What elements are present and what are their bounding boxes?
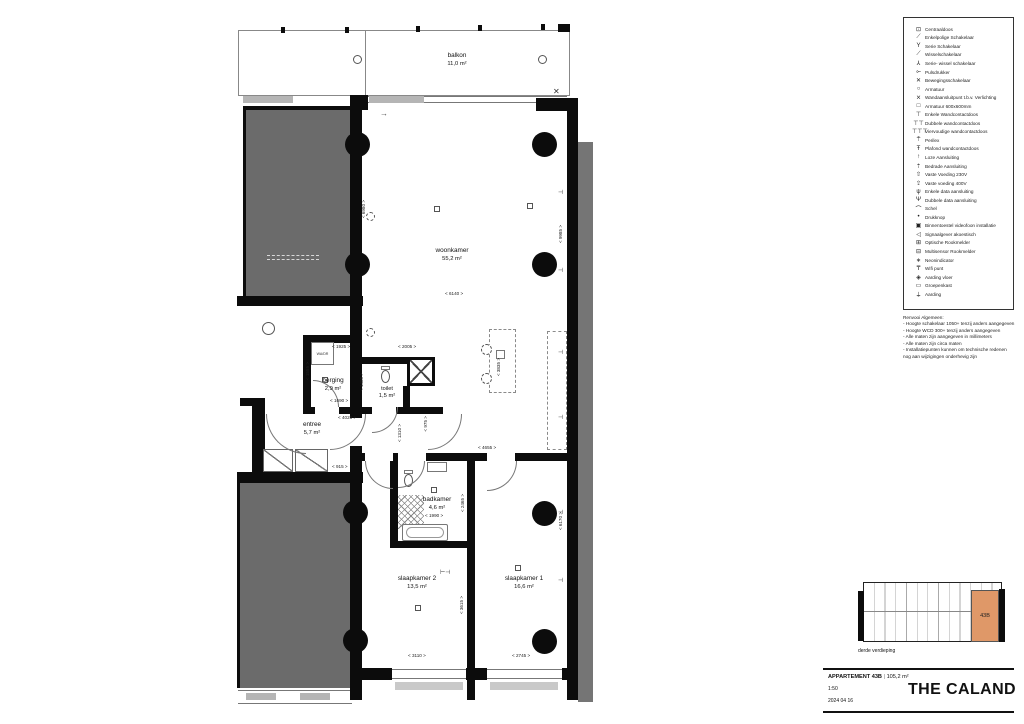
column xyxy=(532,252,557,277)
dimension: < 2745 > xyxy=(512,654,530,659)
luminaire-600x600-icon: □ xyxy=(912,103,925,109)
legend-item: ₸Wifi punt xyxy=(912,264,1009,273)
legend-label: Vaste voeding 400V xyxy=(925,181,967,186)
legend-label: Bewegingsschakelaar xyxy=(925,78,971,83)
key-plan-end-wall xyxy=(858,591,864,641)
project-title: THE CALAND xyxy=(908,681,1014,699)
legend-label: Wisselschakelaar xyxy=(925,52,961,57)
room-area: 16,6 m² xyxy=(514,584,534,590)
ceiling-light-icon xyxy=(434,206,440,212)
door-swing-woonkamer xyxy=(428,414,462,450)
wall xyxy=(393,453,398,461)
legend-label: Bedrade Aansluiting xyxy=(925,164,967,169)
legend-label: Serie- wissel schakelaar xyxy=(925,61,976,66)
optical-smoke-detector-icon: ⊞ xyxy=(912,239,925,246)
general-notes: Renvooi Algemeen: - Hoogte schakelaar 10… xyxy=(903,315,1018,360)
dimension: < 2465 > xyxy=(461,494,466,512)
dimension: < 6140 > xyxy=(445,292,463,297)
legend-item: ⅄Serie- wissel schakelaar xyxy=(912,59,1009,68)
wall-light-point-icon xyxy=(366,212,375,221)
legend-label: Aarding xyxy=(925,292,941,297)
ceiling-socket-icon: Ŧ xyxy=(912,146,925,152)
ceiling-light-icon xyxy=(515,565,521,571)
single-pole-switch-icon: ⟋ xyxy=(912,34,925,41)
legend-item: ▣Binnentoestel videofoon installatie xyxy=(912,222,1009,231)
room-name: balkon xyxy=(447,52,466,60)
column xyxy=(343,628,368,653)
floor-earth-icon: ◈ xyxy=(912,274,925,281)
door-swing-slaapkamer2 xyxy=(365,461,393,489)
room-label-berging: berging 2,9 m² xyxy=(322,377,343,394)
acoustic-signal-icon: ◁ xyxy=(912,231,925,238)
legend-item: ψEnkele data aansluiting xyxy=(912,187,1009,196)
legend-item: ⊞Optische Rookmelder xyxy=(912,239,1009,248)
railing-end-post xyxy=(558,24,570,32)
legend-label: Plafond wandcontactdoos xyxy=(925,146,979,151)
corridor-column-icon xyxy=(262,322,275,335)
legend-item: ⊤⊤⊤Viervoudige wandcontactdoos xyxy=(912,128,1009,137)
legend-item: ○Armatuur xyxy=(912,85,1009,94)
drawing-scale: 1:50 xyxy=(828,686,838,692)
centraaldoos-icon: ⊡ xyxy=(912,26,925,33)
wall-light-point-icon: ⨯ xyxy=(912,94,925,101)
double-data-icon: Ψ xyxy=(912,197,925,203)
window-sill xyxy=(395,682,463,690)
legend-label: Enkelpolige Schakelaar xyxy=(925,35,974,40)
legend-label: Dubbele wandcontactdoos xyxy=(925,121,980,126)
legend-item: ⊤⊤Dubbele wandcontactdoos xyxy=(912,119,1009,128)
double-socket-icon: ⊣ xyxy=(558,350,563,356)
legend-item: •Drukknop xyxy=(912,213,1009,222)
dimension: < 6980 > xyxy=(362,200,367,218)
room-name: berging xyxy=(322,377,343,385)
entry-direction-arrow-icon: → xyxy=(380,110,388,118)
drawing-date: 2024 04 16 xyxy=(828,698,853,704)
legend-item: ✕Bewegingsschakelaar xyxy=(912,76,1009,85)
key-plan-corridor-line xyxy=(863,611,971,612)
dimension: < 1990 > xyxy=(425,514,443,519)
push-knob-icon: • xyxy=(912,214,925,220)
balcony-column-icon xyxy=(538,55,547,64)
motion-switch-icon: ✕ xyxy=(553,88,560,96)
legend-label: Neonindicator xyxy=(925,258,954,263)
room-name: toilet xyxy=(379,386,395,393)
separator: | xyxy=(884,674,885,680)
toilet-tank-icon xyxy=(381,366,390,370)
legend-item: ▭Groepenkast xyxy=(912,281,1009,290)
legend-label: Signaalgever akoestisch xyxy=(925,232,976,237)
bathtub-inner xyxy=(406,527,444,538)
window-band xyxy=(392,669,466,679)
dimension: < 6170 > xyxy=(559,512,564,530)
unwired-connection-icon: ↑ xyxy=(912,154,925,160)
wall xyxy=(467,453,475,700)
floor-label: derde verdieping xyxy=(858,648,895,654)
legend-item: ŦPlafond wandcontactdoos xyxy=(912,145,1009,154)
room-label-slaapkamer1: slaapkamer 1 16,6 m² xyxy=(505,575,543,592)
dimension: < 4025 > xyxy=(338,416,356,421)
mass-dashed-mark xyxy=(267,255,319,256)
column xyxy=(343,500,368,525)
room-area: 11,0 m² xyxy=(447,61,466,67)
double-socket-icon: ⊤⊤ xyxy=(912,120,925,127)
washer-dryer-label: WA/DR xyxy=(317,352,329,356)
legend-item: ⇧Vaste Voeding 230V xyxy=(912,170,1009,179)
single-data-icon: ψ xyxy=(912,189,925,195)
closet xyxy=(263,449,293,472)
series-two-way-switch-icon: ⅄ xyxy=(912,60,925,67)
legend-label: Serie Schakelaar xyxy=(925,44,961,49)
wall xyxy=(390,541,475,548)
door-swing-slaapkamer1 xyxy=(487,461,517,491)
double-socket-icon: ⊣ xyxy=(558,190,563,196)
wall xyxy=(466,668,487,680)
luminaire-icon: ○ xyxy=(912,86,925,92)
titleblock-rule xyxy=(823,668,1014,670)
unit-badge: 43B xyxy=(980,613,990,619)
door-swing-entree xyxy=(266,414,306,454)
legend-item: ⊤Enkele Wandcontactdoos xyxy=(912,110,1009,119)
titleblock-rule xyxy=(823,711,1014,713)
double-socket-icon: ⊣ xyxy=(558,415,563,421)
room-name: entree xyxy=(303,421,321,429)
dimension: < 1690 > xyxy=(330,399,348,404)
earth-icon: ⏚ xyxy=(912,290,925,299)
room-area: 13,5 m² xyxy=(407,584,427,590)
ceiling-light-icon xyxy=(415,605,421,611)
balcony-railing xyxy=(238,30,570,96)
key-plan: 43B xyxy=(853,575,1013,647)
dimension: < 2005 > xyxy=(398,345,416,350)
double-socket-icon: ⊣ xyxy=(558,578,563,584)
room-area: 55,2 m² xyxy=(442,256,462,262)
railing-post xyxy=(281,27,285,33)
dimension: < 4655 > xyxy=(478,446,496,451)
legend-label: Dubbele data aansluiting xyxy=(925,198,977,203)
column xyxy=(345,252,370,277)
chair-outline xyxy=(481,344,492,355)
legend-label: Drukknop xyxy=(925,215,945,220)
room-label-woonkamer: woonkamer 55,2 m² xyxy=(435,247,468,264)
legend-label: Pulsdrukker xyxy=(925,70,950,75)
video-intercom-icon: ▣ xyxy=(912,222,925,229)
notes-line: - Installatiepunten kunnen om technische… xyxy=(903,347,1018,353)
room-name: slaapkamer 1 xyxy=(505,575,543,583)
legend-label: Wifi punt xyxy=(925,266,943,271)
push-button-icon: ⟜ xyxy=(912,69,925,76)
fixed-supply-230v-icon: ⇧ xyxy=(912,171,925,178)
ceiling-light-icon xyxy=(431,487,437,493)
legend-label: Groepenkast xyxy=(925,283,952,288)
apartment-area: 105,2 m² xyxy=(887,674,909,680)
room-label-balkon: balkon 11,0 m² xyxy=(447,52,466,69)
neon-indicator-icon: ∗ xyxy=(912,257,925,264)
two-way-switch-icon: ⟋ xyxy=(912,51,925,58)
notes-line: - Hoogte schakelaar 1050+ tenzij anders … xyxy=(903,321,1018,327)
door-swing-badkamer xyxy=(398,461,425,488)
legend-label: Optische Rookmelder xyxy=(925,240,970,245)
legend-item: ⌒Schel xyxy=(912,204,1009,213)
dimension: < 1310 > xyxy=(398,424,403,442)
washbasin xyxy=(427,462,447,472)
legend-item: ⟋Wisselschakelaar xyxy=(912,51,1009,60)
room-area: 2,9 m² xyxy=(325,386,341,392)
legend-label: Enkele data aansluiting xyxy=(925,189,973,194)
wifi-point-icon: ₸ xyxy=(912,265,925,272)
legend-item: ⟜Pulsdrukker xyxy=(912,68,1009,77)
series-switch-icon: Y xyxy=(912,43,925,49)
kitchen-counter-outline xyxy=(547,331,567,450)
legend-item: ΨDubbele data aansluiting xyxy=(912,196,1009,205)
legend-item: ∗Neonindicator xyxy=(912,256,1009,265)
legend-label: Armatuur xyxy=(925,87,944,92)
legend-item: ⨯Wandaansluitpunt t.b.v. Verlichting xyxy=(912,93,1009,102)
wall xyxy=(303,407,315,414)
wall xyxy=(562,668,578,680)
wall-light-point-icon xyxy=(366,328,375,337)
double-socket-icon: ⊣ xyxy=(558,268,563,274)
legend-item: ⇡Bedrade Aansluiting xyxy=(912,162,1009,171)
room-label-slaapkamer2: slaapkamer 2 13,5 m² xyxy=(398,575,436,592)
legend-item: ⟋Enkelpolige Schakelaar xyxy=(912,34,1009,43)
wall xyxy=(567,103,578,700)
window-band xyxy=(487,669,562,679)
dimension: < 3615 > xyxy=(460,596,465,614)
wall xyxy=(350,668,392,680)
legend-label: Perilex xyxy=(925,138,939,143)
wall xyxy=(350,453,365,461)
wall xyxy=(515,453,578,461)
single-socket-icon: ⊤ xyxy=(912,111,925,118)
motion-switch-icon: ✕ xyxy=(912,77,925,84)
balcony-divider xyxy=(365,31,366,95)
kitchen-island-outline xyxy=(489,329,516,393)
highlighted-unit-43b: 43B xyxy=(971,590,999,642)
bell-icon: ⌒ xyxy=(912,204,925,213)
room-label-badkamer: badkamer 4,6 m² xyxy=(423,496,451,513)
room-name: badkamer xyxy=(423,496,451,504)
toilet-bowl-icon xyxy=(381,370,390,383)
wall xyxy=(237,296,363,306)
dimension: < 9985 > xyxy=(559,225,564,243)
railing-post xyxy=(345,27,349,33)
dimension: < 3110 > xyxy=(408,654,426,659)
room-name: woonkamer xyxy=(435,247,468,255)
notes-line: nog aan wijzigingen onderhevig zijn xyxy=(903,354,1018,360)
window xyxy=(300,693,330,700)
column xyxy=(532,629,557,654)
legend-label: Enkele Wandcontactdoos xyxy=(925,112,978,117)
legend-item: □Armatuur 600x600mm xyxy=(912,102,1009,111)
room-area: 1,5 m² xyxy=(379,393,395,399)
double-socket-icon: ⊢⊣ xyxy=(440,570,450,576)
multisensor-smoke-detector-icon: ⊟ xyxy=(912,248,925,255)
legend-label: Armatuur 600x600mm xyxy=(925,104,971,109)
railing-post xyxy=(416,26,420,32)
wall xyxy=(403,386,410,407)
window xyxy=(246,693,276,700)
adjacent-unit-mass xyxy=(237,483,353,688)
dimension: < 915 > xyxy=(332,465,348,470)
railing-post xyxy=(541,24,545,30)
door-swing-toilet xyxy=(372,407,398,433)
quad-socket-icon: ⊤⊤⊤ xyxy=(912,128,925,135)
column xyxy=(532,132,557,157)
fixed-supply-400v-icon: ⇪ xyxy=(912,180,925,187)
wall xyxy=(362,357,407,364)
wall xyxy=(426,453,487,461)
dimension: < 1485 > xyxy=(360,373,365,391)
dimension: < 1555 > xyxy=(306,362,311,380)
sliding-door xyxy=(369,96,424,103)
legend-label: Viervoudige wandcontactdoos xyxy=(925,129,987,134)
chair-outline xyxy=(481,373,492,384)
wall xyxy=(396,407,443,414)
room-label-toilet: toilet 1,5 m² xyxy=(379,386,395,401)
legend-label: Schel xyxy=(925,206,937,211)
legend-item: ◁Signaalgever akoestisch xyxy=(912,230,1009,239)
legend-item: ⇪Vaste voeding 400V xyxy=(912,179,1009,188)
window-sill xyxy=(490,682,558,690)
room-area: 4,6 m² xyxy=(429,505,445,511)
dimension: < 3835 > xyxy=(497,358,502,376)
room-area: 5,7 m² xyxy=(304,430,320,436)
adjacent-unit-mass xyxy=(243,106,350,297)
legend-item: ↑Loze Aansluiting xyxy=(912,153,1009,162)
shaft xyxy=(407,357,435,386)
legend-label: Binnentoestel videofoon installatie xyxy=(925,223,996,228)
room-name: slaapkamer 2 xyxy=(398,575,436,583)
legend-label: Centraaldoos xyxy=(925,27,953,32)
adjacent-structure-strip xyxy=(578,142,593,702)
distribution-board-icon: ▭ xyxy=(912,282,925,289)
column xyxy=(532,501,557,526)
wall xyxy=(339,407,372,414)
room-label-entree: entree 5,7 m² xyxy=(303,421,321,438)
legend-label: Wandaansluitpunt t.b.v. Verlichting xyxy=(925,95,996,100)
wall xyxy=(350,446,362,700)
legend-item: ⍑Perilex xyxy=(912,136,1009,145)
dimension: < 975 > xyxy=(424,416,429,432)
legend-label: Aarding vloer xyxy=(925,275,953,280)
mass-dashed-mark xyxy=(267,259,319,260)
legend-item: ⊟Multisensor Rookmelder xyxy=(912,247,1009,256)
floorplan-sheet: balkon 11,0 m² ✕ → xyxy=(0,0,1024,724)
legend-item: ◈Aarding vloer xyxy=(912,273,1009,282)
dimension: < 1925 > xyxy=(332,345,350,350)
wired-connection-icon: ⇡ xyxy=(912,163,925,170)
balcony-column-icon xyxy=(353,55,362,64)
key-plan-end-wall xyxy=(999,589,1005,642)
legend-label: Loze Aansluiting xyxy=(925,155,959,160)
perilex-icon: ⍑ xyxy=(912,137,925,144)
legend-item: ⏚Aarding xyxy=(912,290,1009,299)
railing-post xyxy=(478,25,482,31)
legend-item: YSerie Schakelaar xyxy=(912,42,1009,51)
legend-item: ⊡Centraaldoos xyxy=(912,25,1009,34)
legend-box: ⊡Centraaldoos⟋Enkelpolige SchakelaarYSer… xyxy=(903,17,1014,310)
legend-label: Vaste Voeding 230V xyxy=(925,172,967,177)
column xyxy=(345,132,370,157)
ceiling-light-icon xyxy=(527,203,533,209)
sliding-door xyxy=(243,96,293,103)
legend-label: Multisensor Rookmelder xyxy=(925,249,976,254)
apartment-label: APPARTEMENT 43B xyxy=(828,674,882,680)
